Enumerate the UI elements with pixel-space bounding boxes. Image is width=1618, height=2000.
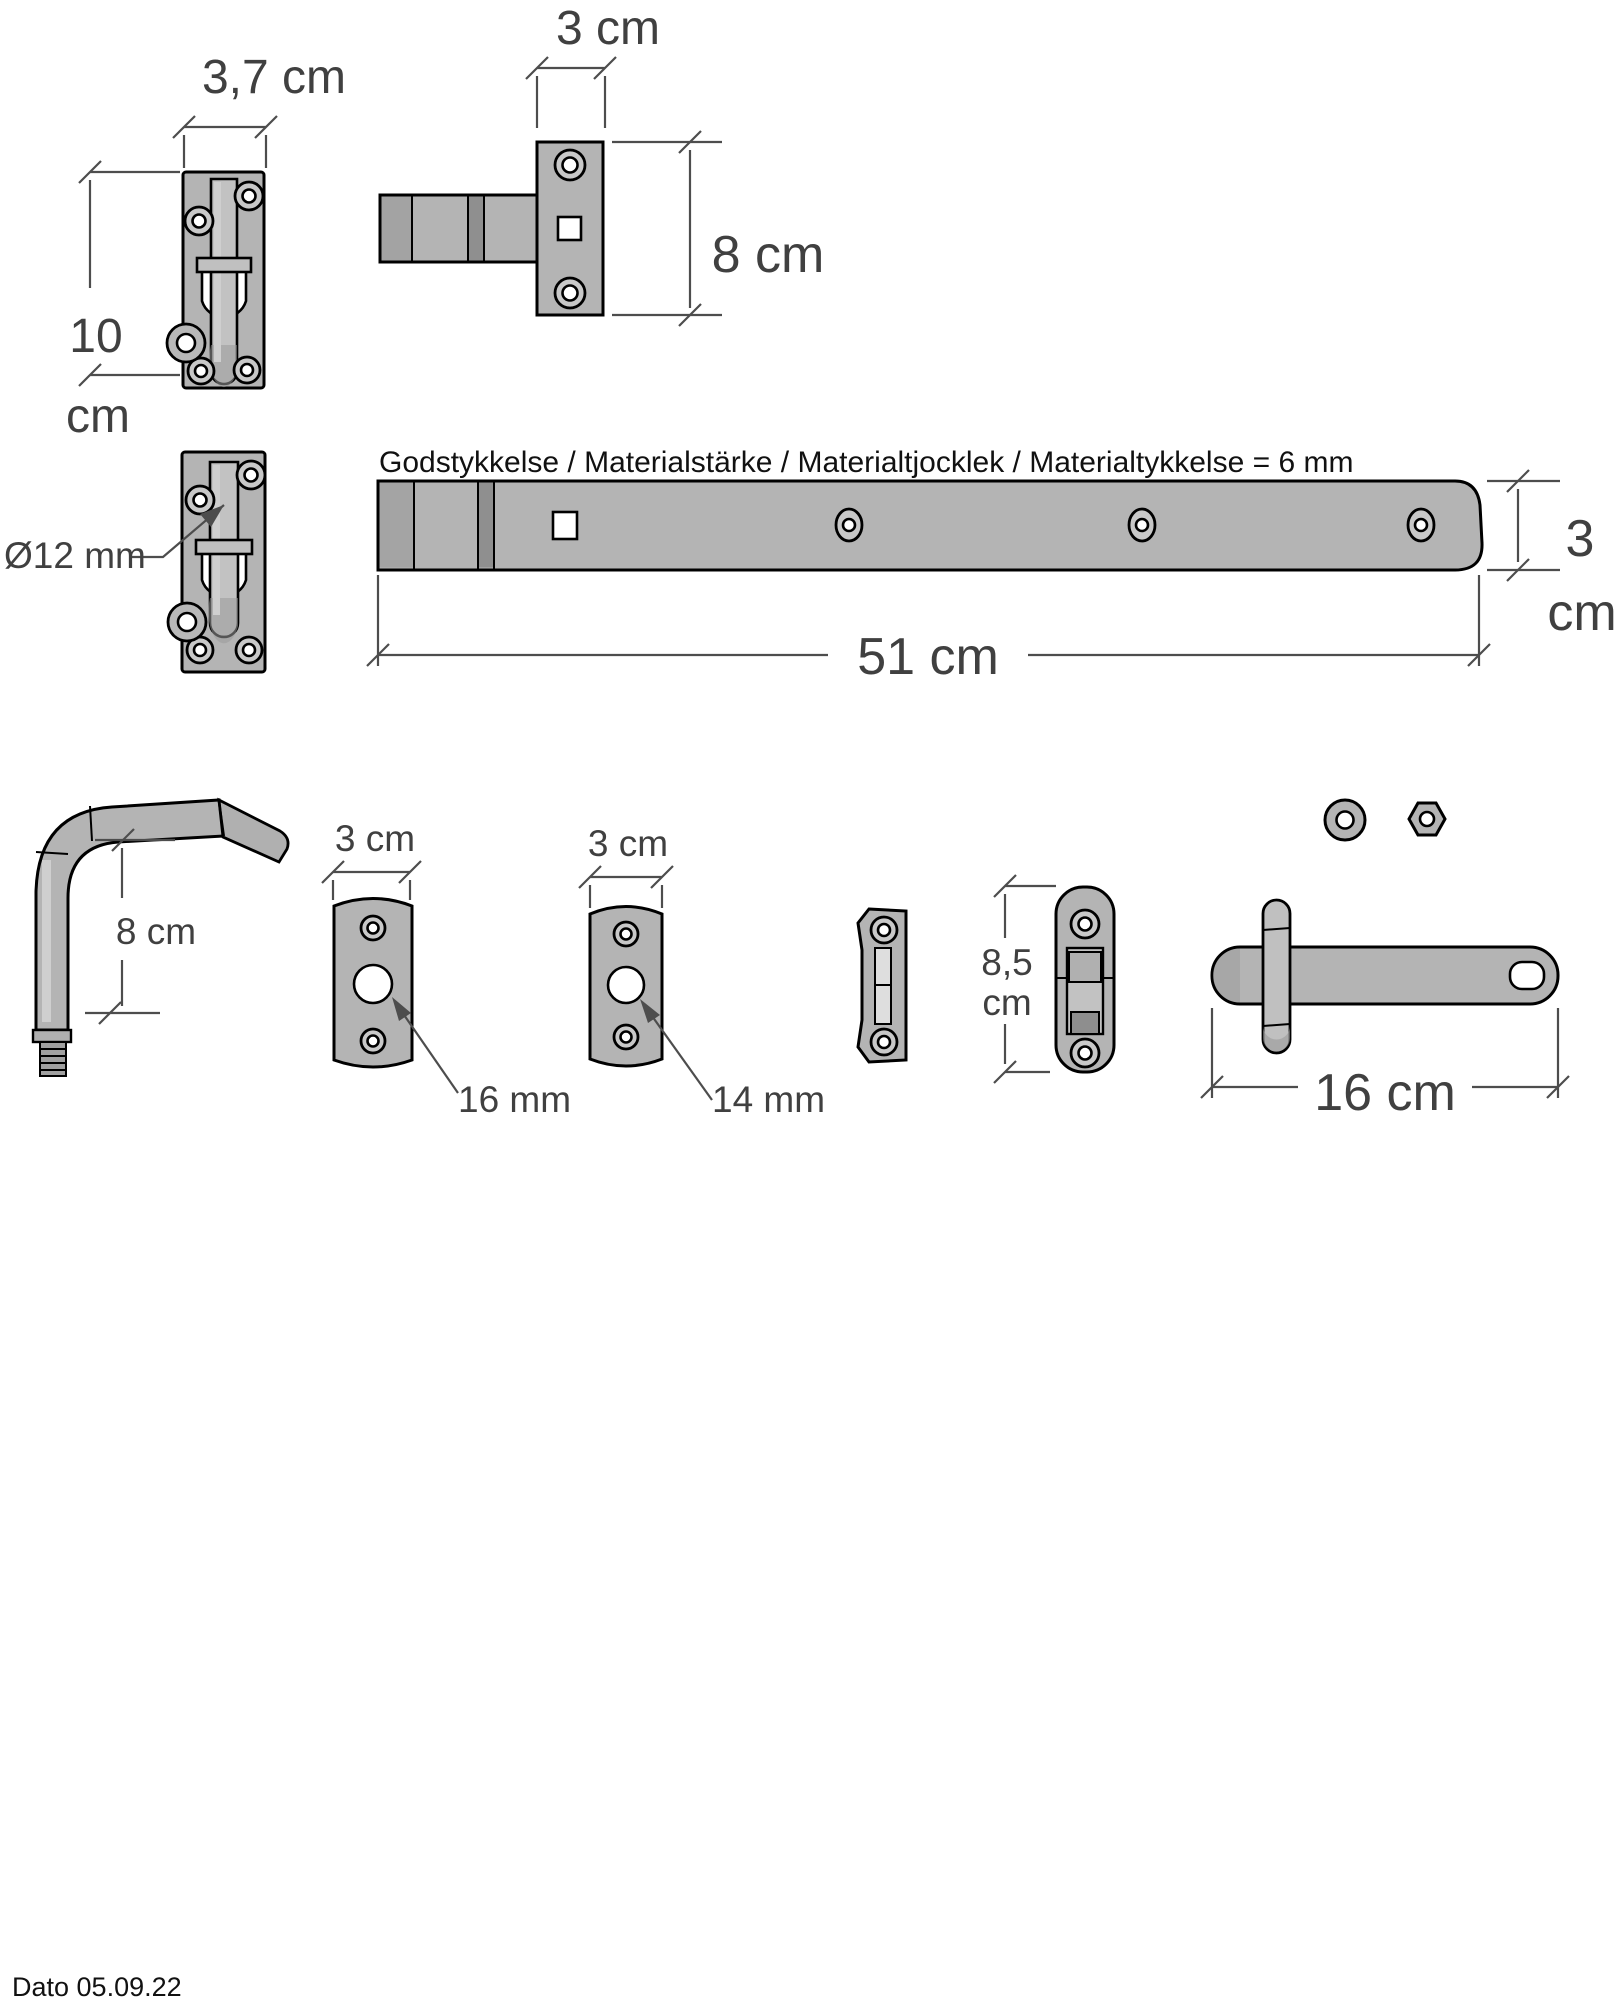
center-hole-16mm	[354, 965, 392, 1003]
date-label: Dato 05.09.22	[12, 1972, 182, 2000]
dim-bolt-latch-width: 3,7 cm	[173, 51, 346, 168]
flip-latch-height-value: 8,5	[981, 942, 1032, 983]
square-hole	[553, 512, 577, 539]
hinge-keeper-width-label: 3 cm	[556, 2, 660, 55]
part-keeper-bracket	[858, 909, 906, 1062]
plate-14-width-label: 3 cm	[588, 823, 668, 864]
strap-length-label: 51 cm	[857, 628, 999, 686]
dim-plate-16-hole: 16 mm	[392, 997, 571, 1120]
part-flip-latch	[1056, 887, 1114, 1072]
bolt-rod-diameter-label: Ø12 mm	[4, 535, 146, 576]
pin-tip	[219, 800, 288, 862]
plate-16-hole-label: 16 mm	[458, 1079, 571, 1120]
bar-pin	[1263, 900, 1290, 1053]
material-thickness-note: Godstykkelse / Materialstärke / Material…	[379, 446, 1353, 479]
pull-ring	[167, 324, 205, 362]
pin-threads	[39, 1042, 67, 1076]
dim-plate-14-width: 3 cm	[579, 823, 673, 908]
part-washer	[1325, 800, 1365, 840]
pin-length-label: 8 cm	[116, 911, 196, 952]
dim-flip-latch-height: 8,5 cm	[981, 875, 1056, 1083]
part-latch-bar	[1212, 900, 1558, 1053]
square-hole	[558, 217, 581, 240]
plate-14-hole-label: 14 mm	[712, 1079, 825, 1120]
strap-width-unit: cm	[1547, 584, 1616, 642]
part-bolt-latch-b	[168, 452, 265, 672]
center-hole-14mm	[608, 967, 644, 1003]
drawing-canvas: 3,7 cm 10 cm 3 cm 8	[0, 0, 1618, 2000]
strap-width-value: 3	[1566, 510, 1595, 568]
part-bolt-latch-a	[167, 172, 264, 388]
pull-ring	[168, 603, 206, 641]
dim-latch-bar-length: 16 cm	[1201, 1008, 1569, 1122]
dim-strap-length: 51 cm	[367, 575, 1490, 686]
bolt-latch-height-value: 10	[69, 310, 122, 363]
part-hex-nut	[1409, 803, 1445, 835]
bolt-latch-width-label: 3,7 cm	[202, 51, 346, 104]
hinge-keeper-height-label: 8 cm	[712, 226, 825, 284]
dim-strap-width: 3 cm	[1487, 470, 1617, 642]
latch-bar-length-label: 16 cm	[1314, 1064, 1456, 1122]
flip-latch-height-unit: cm	[982, 982, 1031, 1023]
bar-slot	[1510, 962, 1544, 989]
plate-16-width-label: 3 cm	[335, 818, 415, 859]
part-plate-16mm	[334, 899, 412, 1068]
part-hinge-keeper	[380, 142, 603, 315]
dim-hinge-keeper-width: 3 cm	[526, 2, 660, 128]
pin-collar	[33, 1030, 71, 1042]
technical-drawing-gate-hardware: 3,7 cm 10 cm 3 cm 8	[0, 0, 1618, 2000]
dim-pin-length: 8 cm	[85, 829, 196, 1024]
part-strap-hinge	[378, 481, 1482, 570]
part-plate-14mm	[590, 907, 662, 1067]
dim-plate-14-hole: 14 mm	[640, 999, 825, 1120]
dim-hinge-keeper-height: 8 cm	[612, 131, 824, 326]
dim-bolt-latch-height: 10 cm	[66, 161, 180, 443]
bolt-latch-height-unit: cm	[66, 390, 130, 443]
dim-plate-16-width: 3 cm	[322, 818, 421, 900]
